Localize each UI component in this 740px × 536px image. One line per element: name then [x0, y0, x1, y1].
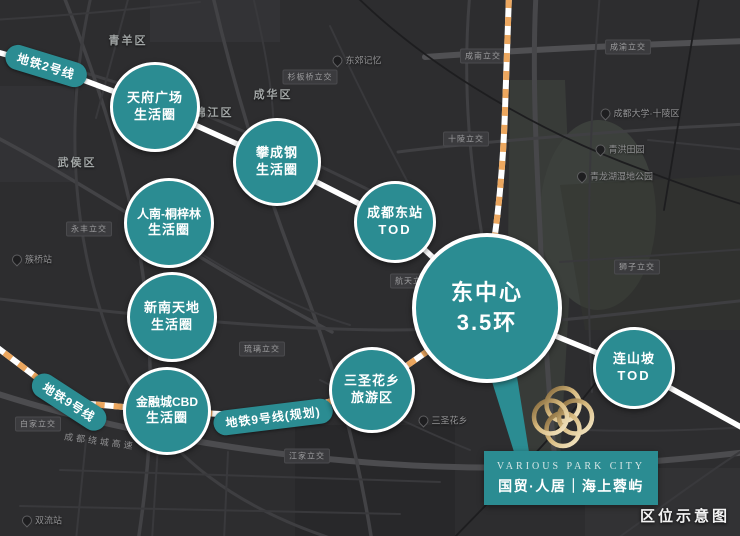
circle-sansheng-flower-town: 三圣花乡 旅游区 — [329, 347, 415, 433]
circle-chengdu-east-station-tod: 成都东站 TOD — [354, 181, 436, 263]
brand-name-cn: 国贸·人居｜海上蓉屿 — [498, 476, 644, 496]
brand-rosette-icon — [525, 379, 601, 455]
circle-xinnantiandi: 新南天地 生活圈 — [127, 272, 217, 362]
location-map: 青羊区 成华区 锦江区 武侯区 杉板桥立交 成南立交 成渝立交 永丰立交 白家立… — [0, 0, 740, 536]
circle-lianshanpo-tod: 连山坡 TOD — [593, 327, 675, 409]
circle-panchenggang: 攀成钢 生活圈 — [233, 118, 321, 206]
circle-rennan-tongzilin: 人南-桐梓林 生活圈 — [124, 178, 214, 268]
brand-name-en: VARIOUS PARK CITY — [497, 461, 645, 472]
map-caption: 区位示意图 — [640, 505, 730, 526]
circle-financial-city-cbd: 金融城CBD 生活圈 — [123, 367, 211, 455]
circle-tianfu-square: 天府广场 生活圈 — [110, 62, 200, 152]
brand-banner: VARIOUS PARK CITY 国贸·人居｜海上蓉屿 — [484, 451, 658, 505]
circle-east-center-35-ring: 东中心 3.5环 — [412, 233, 562, 383]
